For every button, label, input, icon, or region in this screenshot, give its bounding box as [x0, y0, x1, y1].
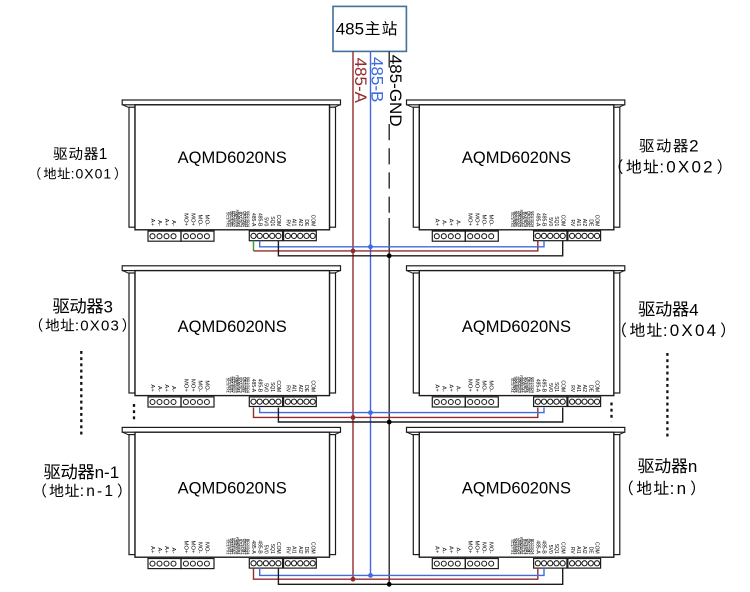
- svg-text::n-1: :n-1: [80, 483, 116, 500]
- svg-text:AQMD6020NS: AQMD6020NS: [178, 149, 287, 167]
- svg-text:AQMD6020NS: AQMD6020NS: [462, 318, 571, 336]
- svg-text::0X03: :0X03: [75, 317, 120, 334]
- svg-text:4: 4: [689, 300, 698, 319]
- svg-text:n-1: n-1: [95, 463, 120, 482]
- svg-text::n: :n: [670, 479, 689, 498]
- svg-text:485-A: 485-A: [351, 58, 370, 104]
- svg-text:485: 485: [336, 19, 364, 38]
- svg-text:3: 3: [104, 297, 113, 316]
- svg-text:2: 2: [689, 136, 698, 155]
- svg-text:485-GND: 485-GND: [386, 55, 405, 127]
- svg-text:485-B: 485-B: [367, 57, 386, 102]
- svg-text::0X04: :0X04: [663, 321, 718, 340]
- svg-text:AQMD6020NS: AQMD6020NS: [462, 149, 571, 167]
- svg-text::0X01: :0X01: [71, 165, 113, 181]
- svg-text:1: 1: [99, 146, 108, 163]
- svg-text:AQMD6020NS: AQMD6020NS: [462, 479, 571, 497]
- svg-text:n: n: [688, 457, 697, 476]
- svg-text::0X02: :0X02: [659, 158, 714, 177]
- svg-text:AQMD6020NS: AQMD6020NS: [178, 318, 287, 336]
- svg-text:AQMD6020NS: AQMD6020NS: [178, 479, 287, 497]
